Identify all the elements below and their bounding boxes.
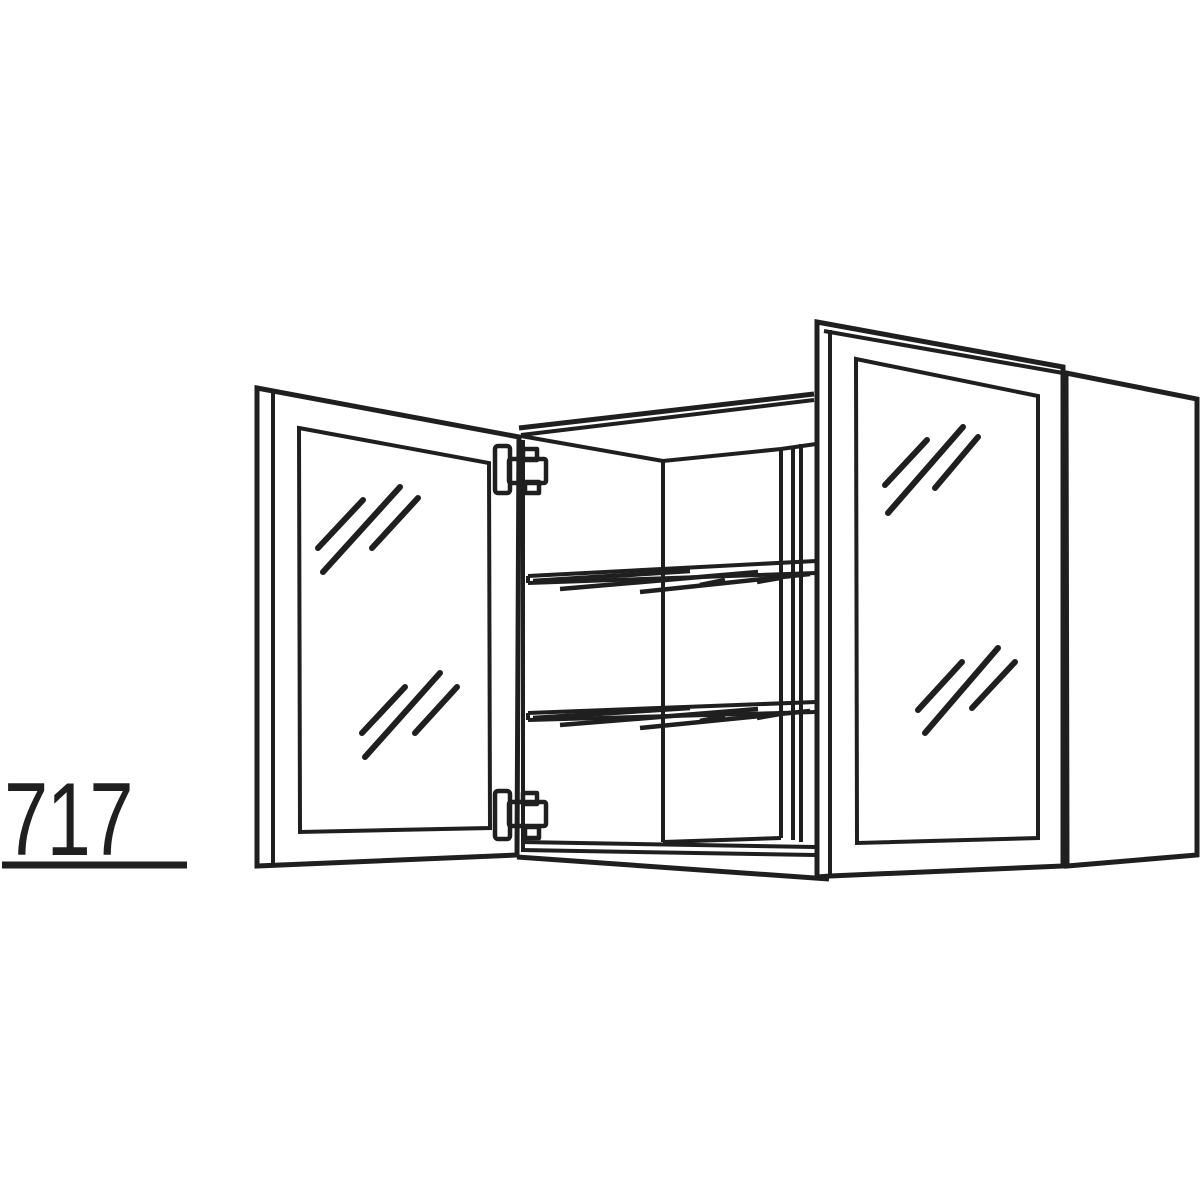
glass-reflection-stroke (918, 662, 962, 710)
dimension-value: 717 (4, 762, 132, 878)
glass-reflection-stroke (318, 500, 363, 548)
right-door-outline (817, 322, 1063, 877)
hinge-tab-bottom (525, 482, 539, 493)
cabinet-carcass (517, 394, 829, 879)
top-panel-front-edge-outer (519, 394, 814, 428)
bottom-front-outer-edge (517, 857, 829, 879)
upper-glass-shelf (528, 561, 816, 592)
side-panel-outline (1066, 373, 1197, 866)
right-door-glass-reflections-lower (918, 648, 1015, 733)
ceiling-back-edges (521, 436, 816, 461)
right-door-glass-reflections-upper (885, 427, 978, 513)
left-door-glass-frame (299, 428, 490, 832)
right-door-glass-frame (856, 359, 1038, 843)
right-side-panel (1066, 373, 1197, 866)
bottom-hinge (495, 791, 546, 839)
dimension-label: 717 (2, 762, 187, 878)
lower-glass-shelf (528, 702, 816, 728)
hinge-arm (509, 459, 546, 483)
bottom-panel-thickness (521, 850, 815, 855)
floor-back-edge (663, 838, 781, 842)
glass-reflection-stroke (372, 498, 418, 548)
right-door-top-edge-inner (824, 331, 1063, 373)
hinge-tab-top (523, 449, 537, 460)
hinge-tab-top (523, 793, 537, 804)
cabinet-drawing: 717 (0, 0, 1200, 1200)
floor-front-edge (521, 842, 815, 847)
left-door (257, 388, 523, 866)
right-door (817, 322, 1063, 877)
top-panel-front-edge-inner (521, 400, 814, 435)
cabinet-drawing-stage: 717 (0, 0, 1200, 1200)
left-door-glass-reflections-lower (362, 673, 457, 757)
glass-reflection-stroke (935, 437, 978, 488)
left-door-glass-reflections-upper (318, 487, 418, 572)
glass-reflection-stroke (362, 687, 405, 733)
hinge-tab-bottom (525, 827, 539, 838)
